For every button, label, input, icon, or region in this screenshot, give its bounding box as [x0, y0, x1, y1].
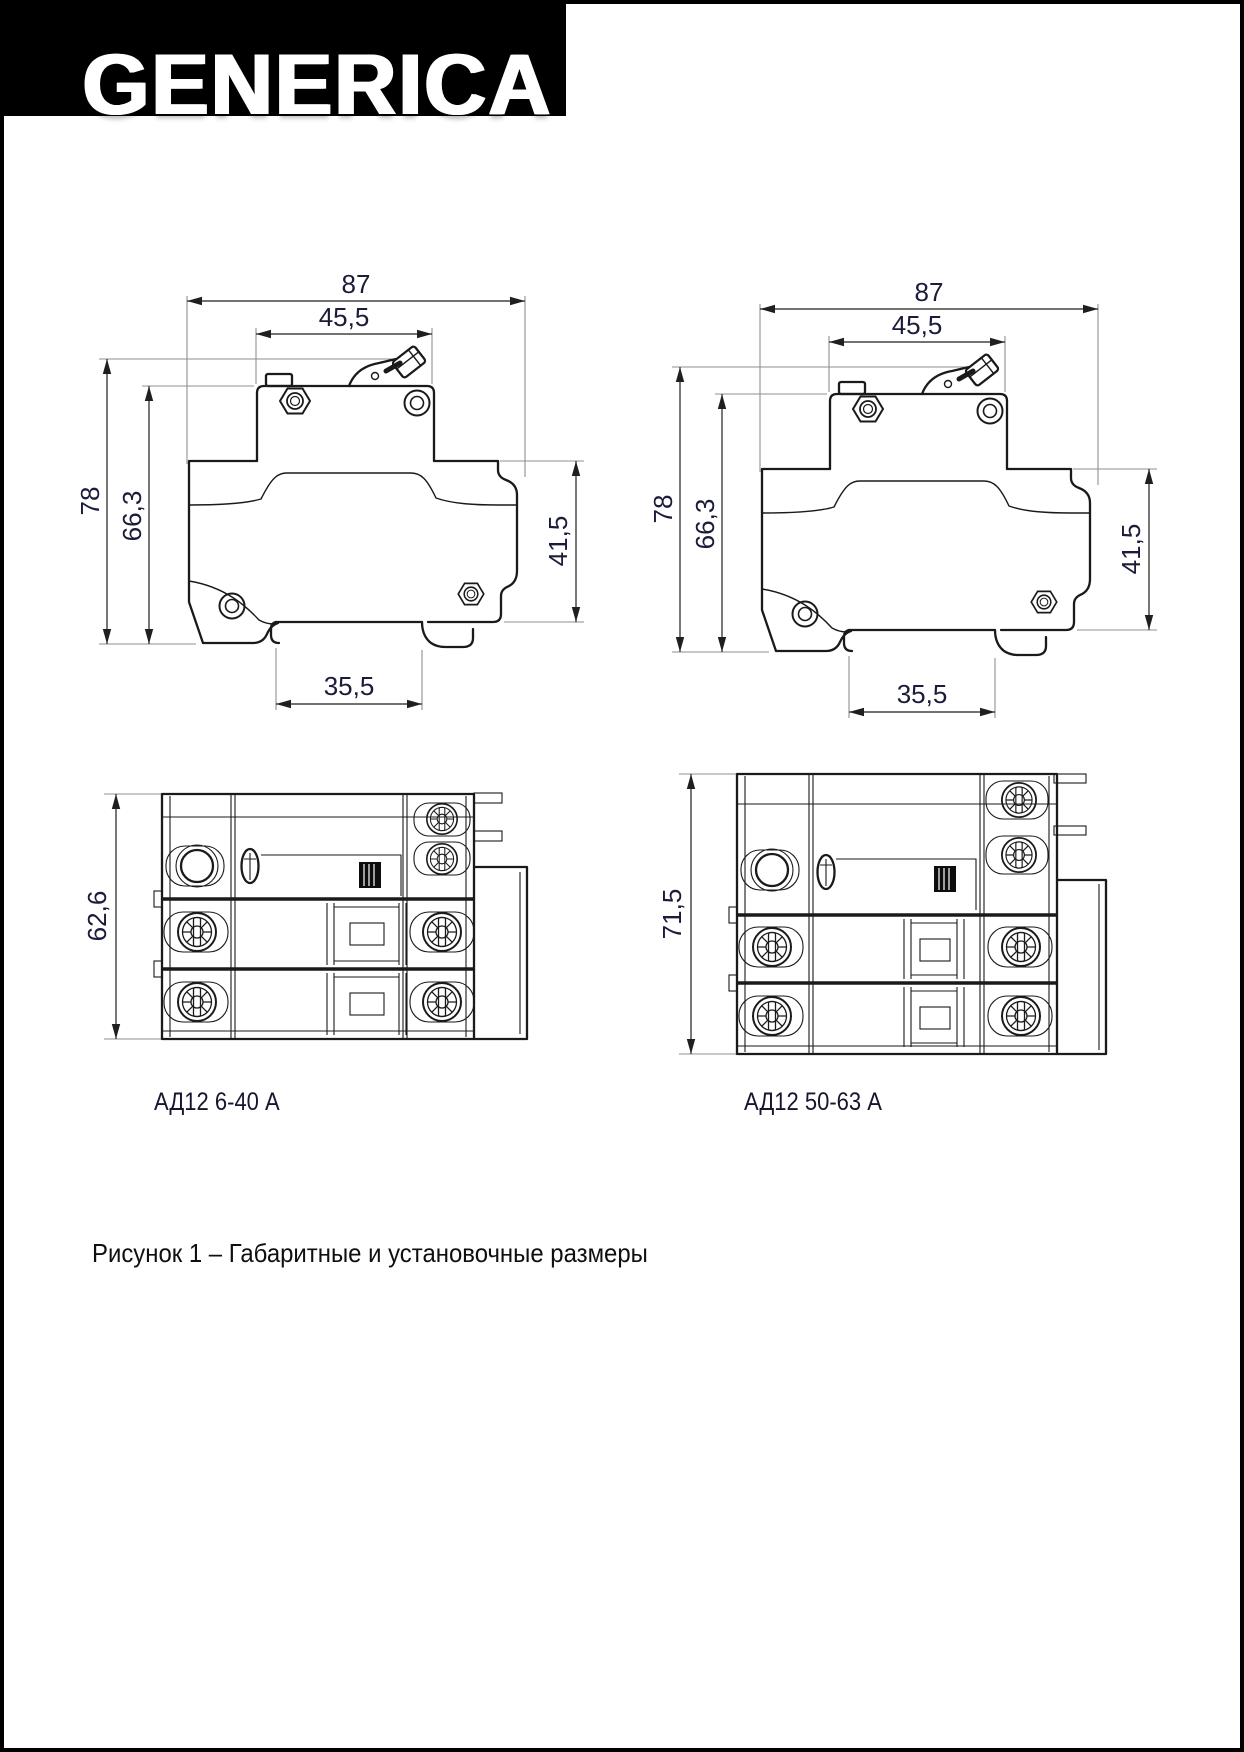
dim-width-top: 45,5 [319, 302, 370, 332]
figure-topview-6-40: 62,6 [82, 793, 527, 1039]
dim-width-overall: 87 [915, 277, 944, 307]
dim-width-overall: 87 [342, 269, 371, 299]
product-label-50-63: АД12 50-63 А [744, 1088, 882, 1117]
document-page: GENERICA [0, 0, 1244, 1752]
figure-profile-50-63: 87 45,5 78 66,3 41,5 35,5 [648, 277, 1157, 718]
dim-height-overall: 78 [648, 495, 678, 524]
dim-height-overall: 62,6 [82, 891, 112, 942]
figure-profile-6-40: 87 45,5 78 66,3 41,5 35,5 [75, 269, 584, 710]
dim-height-right: 41,5 [1116, 524, 1146, 575]
dim-height-right: 41,5 [543, 516, 573, 567]
dim-width-foot: 35,5 [324, 671, 375, 701]
dim-height-body: 66,3 [117, 491, 147, 542]
dim-width-foot: 35,5 [897, 679, 948, 709]
product-label-6-40: АД12 6-40 А [154, 1088, 280, 1117]
dim-height-body: 66,3 [690, 499, 720, 550]
dim-height-overall: 71,5 [657, 889, 687, 940]
figure-topview-50-63: 71,5 [657, 774, 1106, 1054]
dim-width-top: 45,5 [892, 310, 943, 340]
dimension-drawings: 87 45,5 78 66,3 41,5 35,5 87 45,5 78 66,… [4, 4, 1244, 1752]
figure-caption: Рисунок 1 – Габаритные и установочные ра… [92, 1238, 648, 1269]
dim-height-overall: 78 [75, 487, 105, 516]
